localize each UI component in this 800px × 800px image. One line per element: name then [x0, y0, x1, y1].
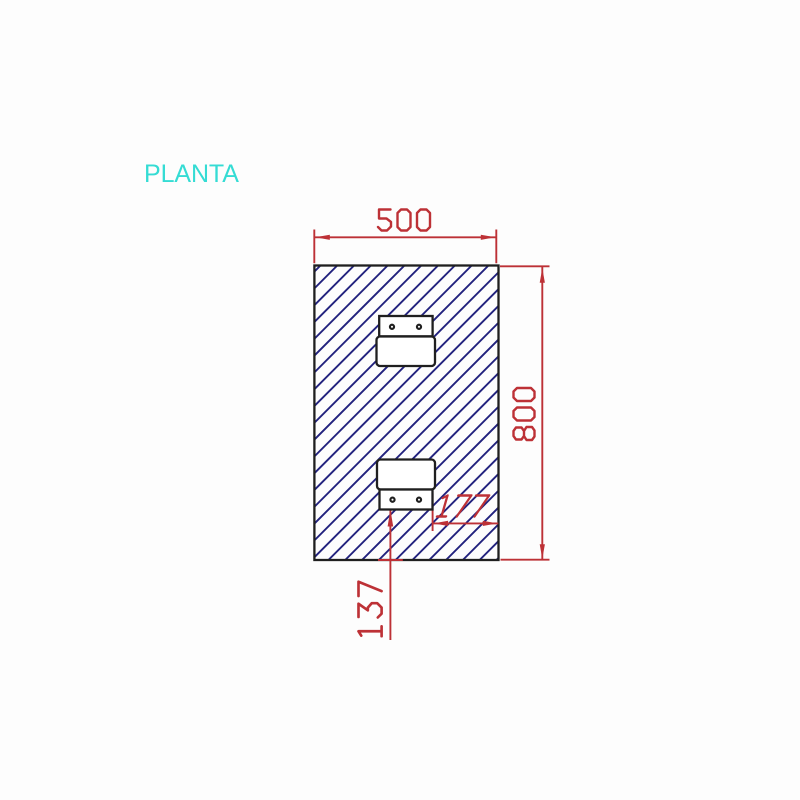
svg-text:PLANTA: PLANTA	[144, 160, 239, 188]
